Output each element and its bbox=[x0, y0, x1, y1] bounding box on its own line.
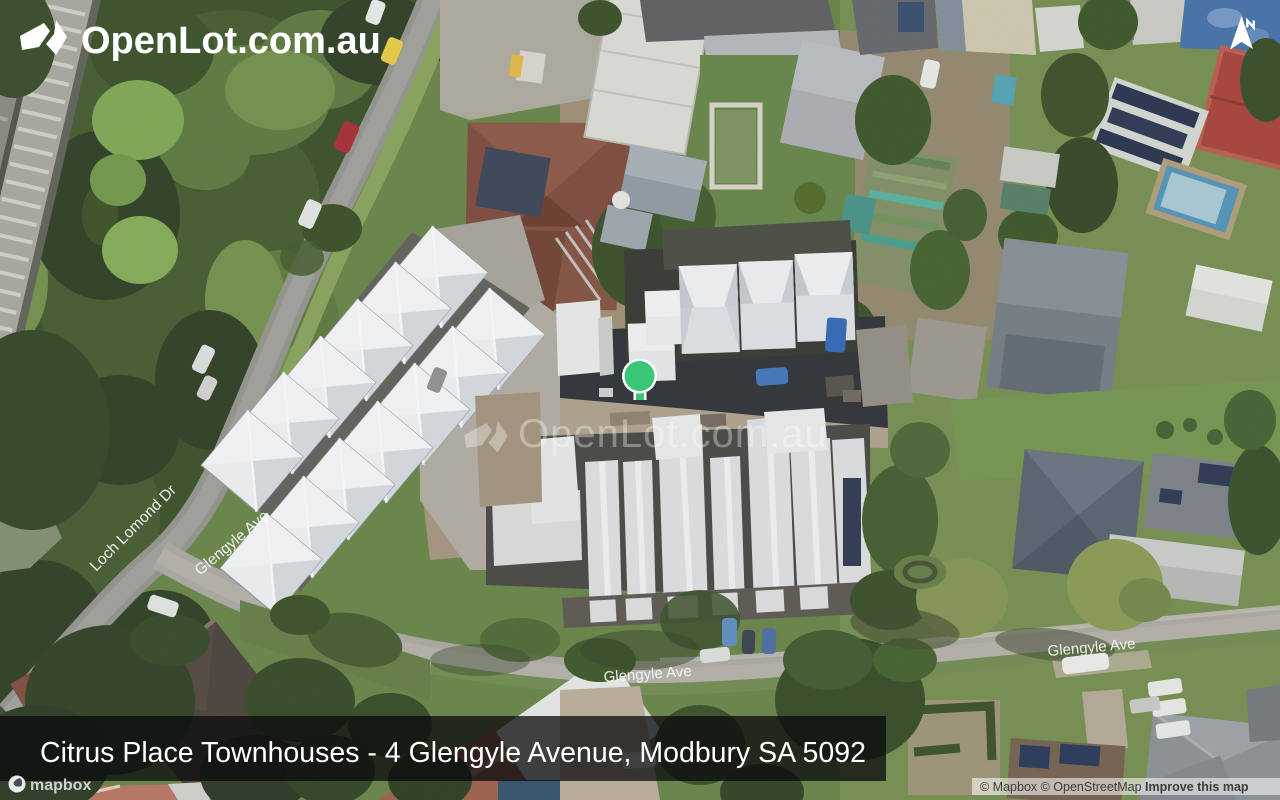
svg-text:Citrus Place Townhouses - 4 Gl: Citrus Place Townhouses - 4 Glengyle Ave… bbox=[40, 737, 866, 769]
svg-text:OpenLot.com.au: OpenLot.com.au bbox=[518, 412, 828, 456]
svg-text:OpenLot.com.au: OpenLot.com.au bbox=[81, 20, 381, 62]
svg-text:mapbox: mapbox bbox=[30, 777, 91, 794]
svg-text:© Mapbox © OpenStreetMap Impro: © Mapbox © OpenStreetMap Improve this ma… bbox=[980, 780, 1249, 794]
